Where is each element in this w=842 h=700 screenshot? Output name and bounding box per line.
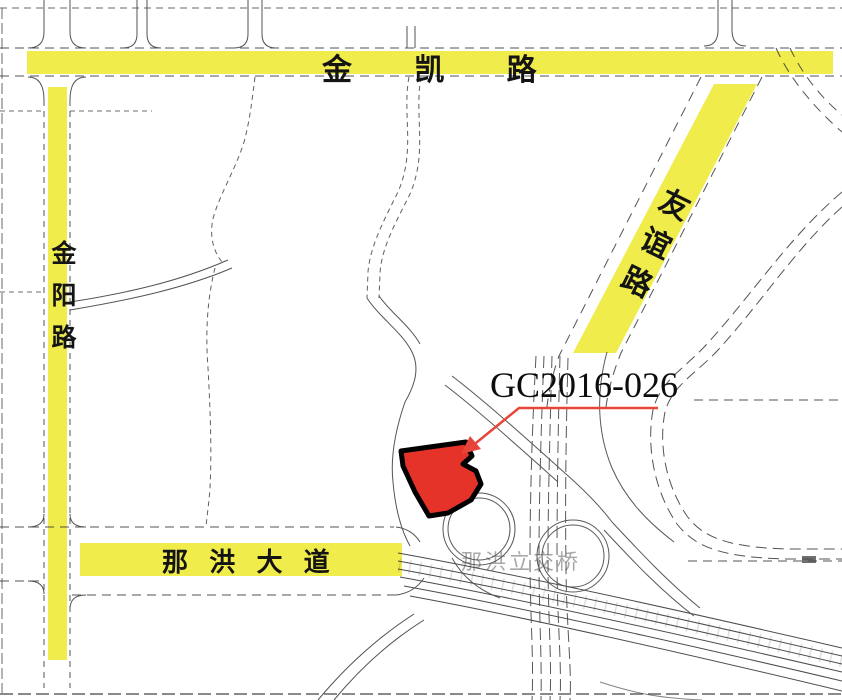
jinyang-road-label: 金阳路 bbox=[44, 240, 80, 366]
jinkai-road-label: 金 凯 路 bbox=[322, 45, 564, 89]
parcel-code-label: GC2016-026 bbox=[490, 364, 678, 406]
parcel-location-map: 那洪立交桥 bbox=[0, 0, 842, 700]
map-annotation-mark bbox=[802, 556, 816, 563]
minor-roads bbox=[70, 260, 420, 546]
right-boundary-road bbox=[651, 192, 842, 559]
youyi-road-edges bbox=[546, 48, 842, 415]
parcel-group bbox=[401, 408, 658, 516]
parcel-gc2016-026 bbox=[401, 442, 481, 516]
jinyang-road-band bbox=[48, 87, 67, 660]
nahong-road-label: 那 洪 大 道 bbox=[162, 542, 337, 579]
map-drawing bbox=[0, 0, 842, 700]
planned-road-dashed bbox=[206, 77, 421, 527]
leader-line bbox=[471, 408, 658, 447]
